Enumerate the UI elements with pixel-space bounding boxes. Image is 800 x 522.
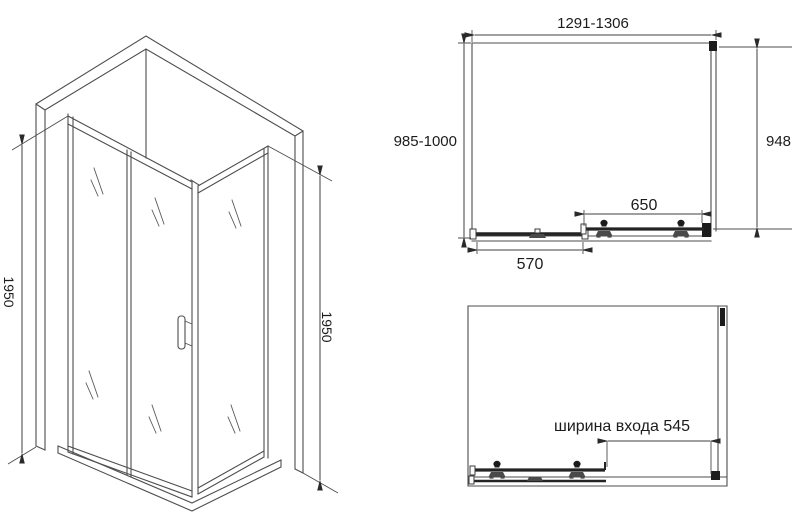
open-view: ширина входа 545 xyxy=(468,306,727,486)
open-outline xyxy=(468,306,727,486)
plan-door-panel xyxy=(581,220,704,238)
fixed-panel-label: 570 xyxy=(517,256,544,273)
dimension-depth: 985-1000 xyxy=(394,43,471,238)
height-right-label: 1950 xyxy=(319,311,335,342)
shower-enclosure-dimension-drawing: 1950 1950 xyxy=(0,0,800,522)
dimension-fixed-panel: 570 xyxy=(477,242,583,273)
overall-width-label: 1291-1306 xyxy=(557,15,629,32)
back-wall-frame xyxy=(36,36,303,473)
glass-door-panel xyxy=(68,114,192,497)
glass-reflection-marks xyxy=(86,168,241,433)
plan-fixed-panel xyxy=(470,229,588,239)
shower-tray xyxy=(58,446,281,511)
wall-profile-top xyxy=(720,308,725,326)
open-door-panel xyxy=(470,461,605,479)
plan-view: 1291-1306 985-1000 948 650 570 xyxy=(394,15,792,273)
plan-outline xyxy=(472,43,716,241)
iso-view: 1950 1950 xyxy=(1,36,338,511)
side-panel-label: 948 xyxy=(766,133,791,150)
height-left-label: 1950 xyxy=(1,276,17,307)
dimension-height-left: 1950 xyxy=(1,116,68,464)
wall-profile-top xyxy=(709,41,717,51)
wall-profile-bottom xyxy=(711,471,720,480)
side-glass-panel xyxy=(198,146,268,494)
corner-post xyxy=(191,180,199,497)
door-panel-label: 650 xyxy=(631,197,658,214)
depth-label: 985-1000 xyxy=(394,133,457,150)
door-handle xyxy=(178,316,192,349)
drawing-svg: 1950 1950 xyxy=(0,0,800,522)
dimension-side-panel: 948 xyxy=(713,47,792,229)
dimension-overall-width: 1291-1306 xyxy=(472,15,716,42)
entry-width-label: ширина входа 545 xyxy=(554,418,690,435)
